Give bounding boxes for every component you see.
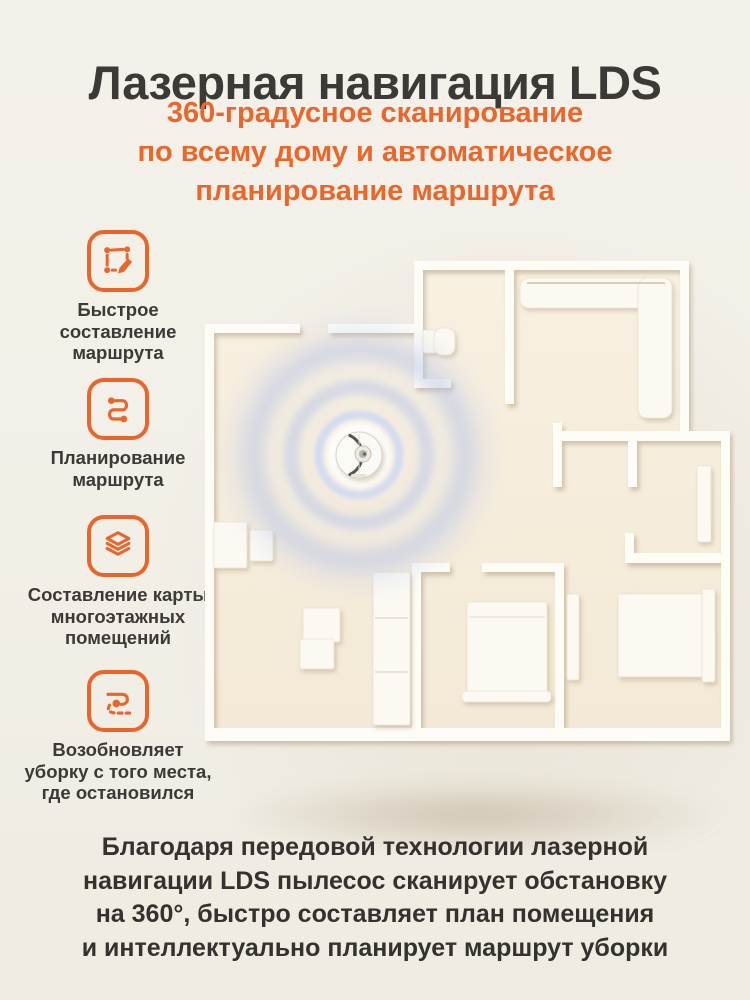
feature-label: Составление карты многоэтажных помещений (0, 584, 236, 649)
route-plan-icon (87, 378, 149, 440)
subtitle-line: планирование маршрута (0, 172, 750, 211)
floorplan-image (205, 245, 735, 755)
door-panel (697, 466, 711, 542)
feature-resume-cleaning: Возобновляет уборку с того места, где ос… (0, 670, 236, 804)
bed-middle (467, 602, 547, 695)
bed-right (618, 594, 704, 677)
sofa-vertical (638, 278, 672, 418)
resume-clean-icon (87, 670, 149, 732)
feature-label: Быстрое составление маршрута (0, 299, 236, 364)
side-table-2 (300, 639, 334, 669)
feature-label: Возобновляет уборку с того места, где ос… (0, 739, 236, 804)
feature-multifloor-maps: Составление карты многоэтажных помещений (0, 515, 236, 649)
feature-label: Планирование маршрута (0, 447, 236, 490)
subtitle-line: 360-градусное сканирование (0, 94, 750, 133)
panel-middle (567, 594, 579, 680)
side-table-1 (303, 608, 340, 642)
layers-icon (87, 515, 149, 577)
bed-middle-footboard (462, 691, 551, 702)
subtitle-line: по всему дому и автоматическое (0, 133, 750, 172)
footer-paragraph: Благодаря передовой технологии лазерной … (0, 831, 750, 965)
feature-fast-mapping: Быстрое составление маршрута (0, 230, 236, 364)
feature-route-planning: Планирование маршрута (0, 378, 236, 490)
bed-right-headboard (702, 589, 715, 682)
route-draw-icon (87, 230, 149, 292)
robot-vacuum (336, 432, 382, 478)
page-subtitle: 360-градусное сканирование по всему дому… (0, 94, 750, 211)
floorplan-svg (205, 245, 735, 755)
